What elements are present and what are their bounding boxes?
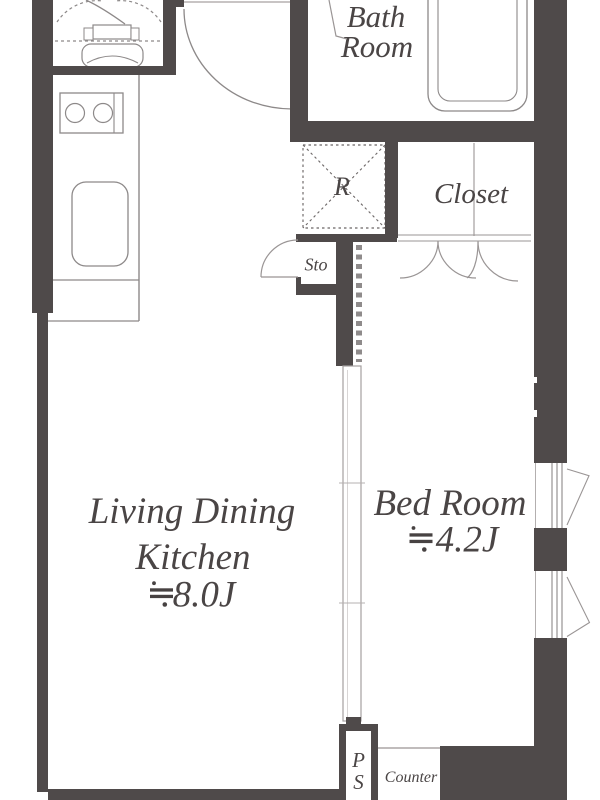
svg-text:R: R	[333, 172, 350, 201]
svg-text:Living Dining: Living Dining	[88, 491, 296, 532]
svg-text:P: P	[351, 748, 365, 772]
svg-text:Sto: Sto	[304, 255, 327, 275]
svg-text:4.2J: 4.2J	[436, 520, 500, 561]
svg-text:Room: Room	[340, 29, 413, 64]
svg-text:8.0J: 8.0J	[173, 575, 237, 616]
svg-text:Kitchen: Kitchen	[134, 537, 250, 578]
svg-text:S: S	[353, 770, 364, 794]
svg-text:Closet: Closet	[434, 178, 509, 210]
svg-text:Bed Room: Bed Room	[373, 483, 526, 524]
svg-text:Counter: Counter	[385, 769, 438, 786]
